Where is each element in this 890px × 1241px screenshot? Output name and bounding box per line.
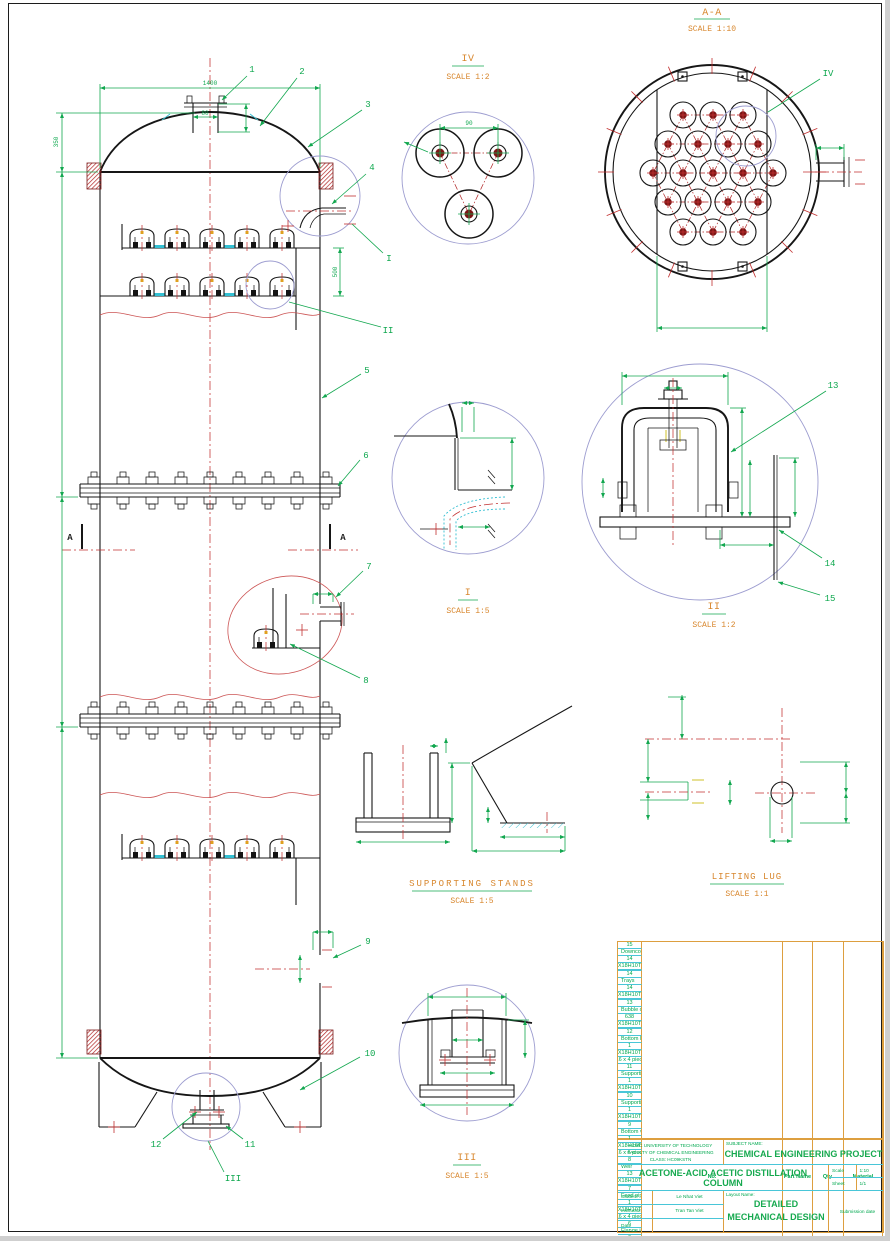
svg-text:10: 10 [365, 1049, 376, 1059]
instructor-name-cell: Tran Tan Viet [653, 1205, 724, 1219]
svg-text:3: 3 [365, 100, 370, 110]
dim-80: 80 [201, 110, 209, 117]
svg-text:SCALE 1:2: SCALE 1:2 [446, 73, 489, 82]
part-notes: M16 x 4 pieces [618, 1057, 642, 1064]
part-material: X18H10T [618, 1114, 642, 1121]
callout-iv: IV [823, 69, 834, 79]
part-number: 10 [618, 1093, 642, 1100]
page-edge-right [885, 0, 890, 1241]
lifting-lug-view: LIFTING LUG SCALE 1:1 [640, 695, 850, 899]
dim-350: 350 [53, 136, 60, 147]
layout-title-line1: DETAILED [724, 1197, 828, 1210]
svg-text:LIFTING LUG: LIFTING LUG [712, 872, 782, 882]
bottom-vapor-inlet [255, 932, 333, 987]
part-number: 12 [618, 1029, 642, 1036]
view-scale-aa: SCALE 1:10 [688, 25, 736, 34]
part-qty: 1 [618, 1043, 642, 1050]
submission-cell: Submission date [829, 1191, 883, 1233]
dim-90: 90 [465, 120, 473, 127]
svg-text:A: A [340, 533, 346, 543]
part-name: Downcomers [618, 949, 642, 956]
part-qty: 14 [618, 956, 642, 963]
student-label-cell: Student [618, 1191, 653, 1205]
detail-i-view: I SCALE 1:5 [392, 402, 544, 616]
part-name: Bottom liquid outlet pipe [618, 1036, 642, 1043]
svg-text:11: 11 [245, 1140, 256, 1150]
svg-text:III: III [457, 1153, 477, 1164]
sheet-label: Sheet [829, 1178, 856, 1190]
part-qty: 638 [618, 1014, 642, 1021]
part-qty: 14 [618, 985, 642, 992]
svg-text:SCALE 1:5: SCALE 1:5 [450, 897, 493, 906]
svg-text:1: 1 [249, 65, 254, 75]
instructor-label-cell: Instructor [618, 1205, 653, 1219]
svg-text:II: II [383, 326, 394, 336]
svg-text:I: I [465, 588, 472, 599]
part-number: 11 [618, 1064, 642, 1071]
svg-text:5: 5 [364, 366, 369, 376]
tray-row-3 [122, 834, 320, 905]
part-name: Bubble caps [618, 1007, 642, 1014]
callout-14: 14 [825, 559, 836, 569]
date-value-cell [653, 1219, 724, 1233]
svg-text:III: III [225, 1174, 241, 1184]
svg-text:I: I [386, 254, 391, 264]
sheet-cell: Sheet 1/1 [829, 1178, 883, 1191]
svg-text:SUPPORTING STANDS: SUPPORTING STANDS [409, 879, 535, 889]
supporting-stands-view: SUPPORTING STANDS SCALE 1:5 [356, 706, 572, 906]
tray-row-2 [100, 273, 296, 299]
date-label-cell: Date [618, 1219, 653, 1233]
part-number: 13 [618, 1000, 642, 1007]
feed-pipe-assembly [215, 561, 355, 688]
scale-label: Scale [829, 1165, 856, 1177]
layout-cell: Layout Name: DETAILED MECHANICAL DESIGN [724, 1191, 829, 1233]
svg-text:9: 9 [365, 937, 370, 947]
aa-side-nozzle [803, 144, 865, 187]
page-edge-bottom [0, 1236, 890, 1241]
callout-13: 13 [828, 381, 839, 391]
svg-text:SCALE 1:1: SCALE 1:1 [725, 890, 768, 899]
part-qty: 1 [618, 1078, 642, 1085]
sheet-value: 1/1 [856, 1178, 884, 1190]
svg-text:2: 2 [299, 67, 304, 77]
svg-text:II: II [707, 602, 720, 613]
subject-title: CHEMICAL ENGINEERING PROJECT [724, 1146, 883, 1161]
callouts: 1 2 3 4 I II 5 6 7 8 9 [151, 65, 394, 1184]
part-material: X18H10T [618, 1021, 642, 1028]
part-qty: 1 [618, 1107, 642, 1114]
part-number: 15 [618, 942, 642, 949]
subject-cell: SUBJECT NAME: CHEMICAL ENGINEERING PROJE… [724, 1140, 883, 1165]
svg-text:12: 12 [151, 1140, 162, 1150]
part-number: 14 [618, 971, 642, 978]
part-material: X18H10T [618, 1085, 642, 1092]
svg-text:SCALE 1:5: SCALE 1:5 [446, 607, 489, 616]
detail-iii-view: III SCALE 1:5 [399, 985, 535, 1181]
part-material: X18H10T [618, 963, 642, 970]
drawing-title: ACETONE-ACID ACETIC DISTILLATION COLUMN [618, 1165, 829, 1191]
scale-value: 1:10 [856, 1165, 884, 1177]
tray-row-1 [122, 224, 320, 330]
detail-iv-view: IV SCALE 1:2 90 [402, 54, 534, 244]
scale-cell: Scale 1:10 [829, 1165, 883, 1178]
leader [333, 945, 361, 958]
title-block: HCMC UNIVERSITY OF TECHNOLOGY FACULTY OF… [617, 1139, 884, 1233]
class-name: CLASS: HC09KSTN [618, 1157, 723, 1164]
part-material: X18H10T [618, 992, 642, 999]
university-info: HCMC UNIVERSITY OF TECHNOLOGY FACULTY OF… [618, 1140, 724, 1165]
svg-text:6: 6 [363, 451, 368, 461]
layout-title-line2: MECHANICAL DESIGN [724, 1210, 828, 1223]
svg-text:IV: IV [461, 54, 474, 65]
detail-ii-view: II SCALE 1:2 [582, 364, 838, 630]
parts-table: 15 Downcomers 14 X18H10T 14 Trays 14 X18… [617, 941, 884, 1139]
student-name-cell: Le Nhat Viet [653, 1191, 724, 1205]
part-material: X18H10T [618, 1050, 642, 1057]
svg-text:4: 4 [369, 163, 374, 173]
drawing-sheet: 80 [0, 0, 890, 1241]
part-name: Trays [618, 978, 642, 985]
part-number: 9 [618, 1122, 642, 1129]
dim-1400: 1400 [203, 80, 218, 87]
section-aa-view: A-A SCALE 1:10 [598, 8, 865, 332]
svg-text:SCALE 1:5: SCALE 1:5 [445, 1172, 488, 1181]
dim-500: 500 [332, 266, 339, 277]
svg-text:SCALE 1:2: SCALE 1:2 [692, 621, 735, 630]
column-elevation-view: 80 [53, 58, 393, 1184]
university-name: HCMC UNIVERSITY OF TECHNOLOGY [618, 1143, 723, 1150]
view-title-aa: A-A [702, 8, 722, 19]
svg-text:A: A [67, 533, 73, 543]
left-dimension-chain: 350 [53, 113, 195, 1058]
part-name: Supporting stands [618, 1100, 642, 1107]
part-name: Supporting stands [618, 1071, 642, 1078]
part-name: Bottom vapor inlet pipe [618, 1129, 642, 1136]
svg-text:8: 8 [363, 676, 368, 686]
callout-15: 15 [825, 594, 836, 604]
svg-text:7: 7 [366, 562, 371, 572]
faculty-name: FACULTY OF CHEMICAL ENGINEERING [618, 1150, 723, 1157]
